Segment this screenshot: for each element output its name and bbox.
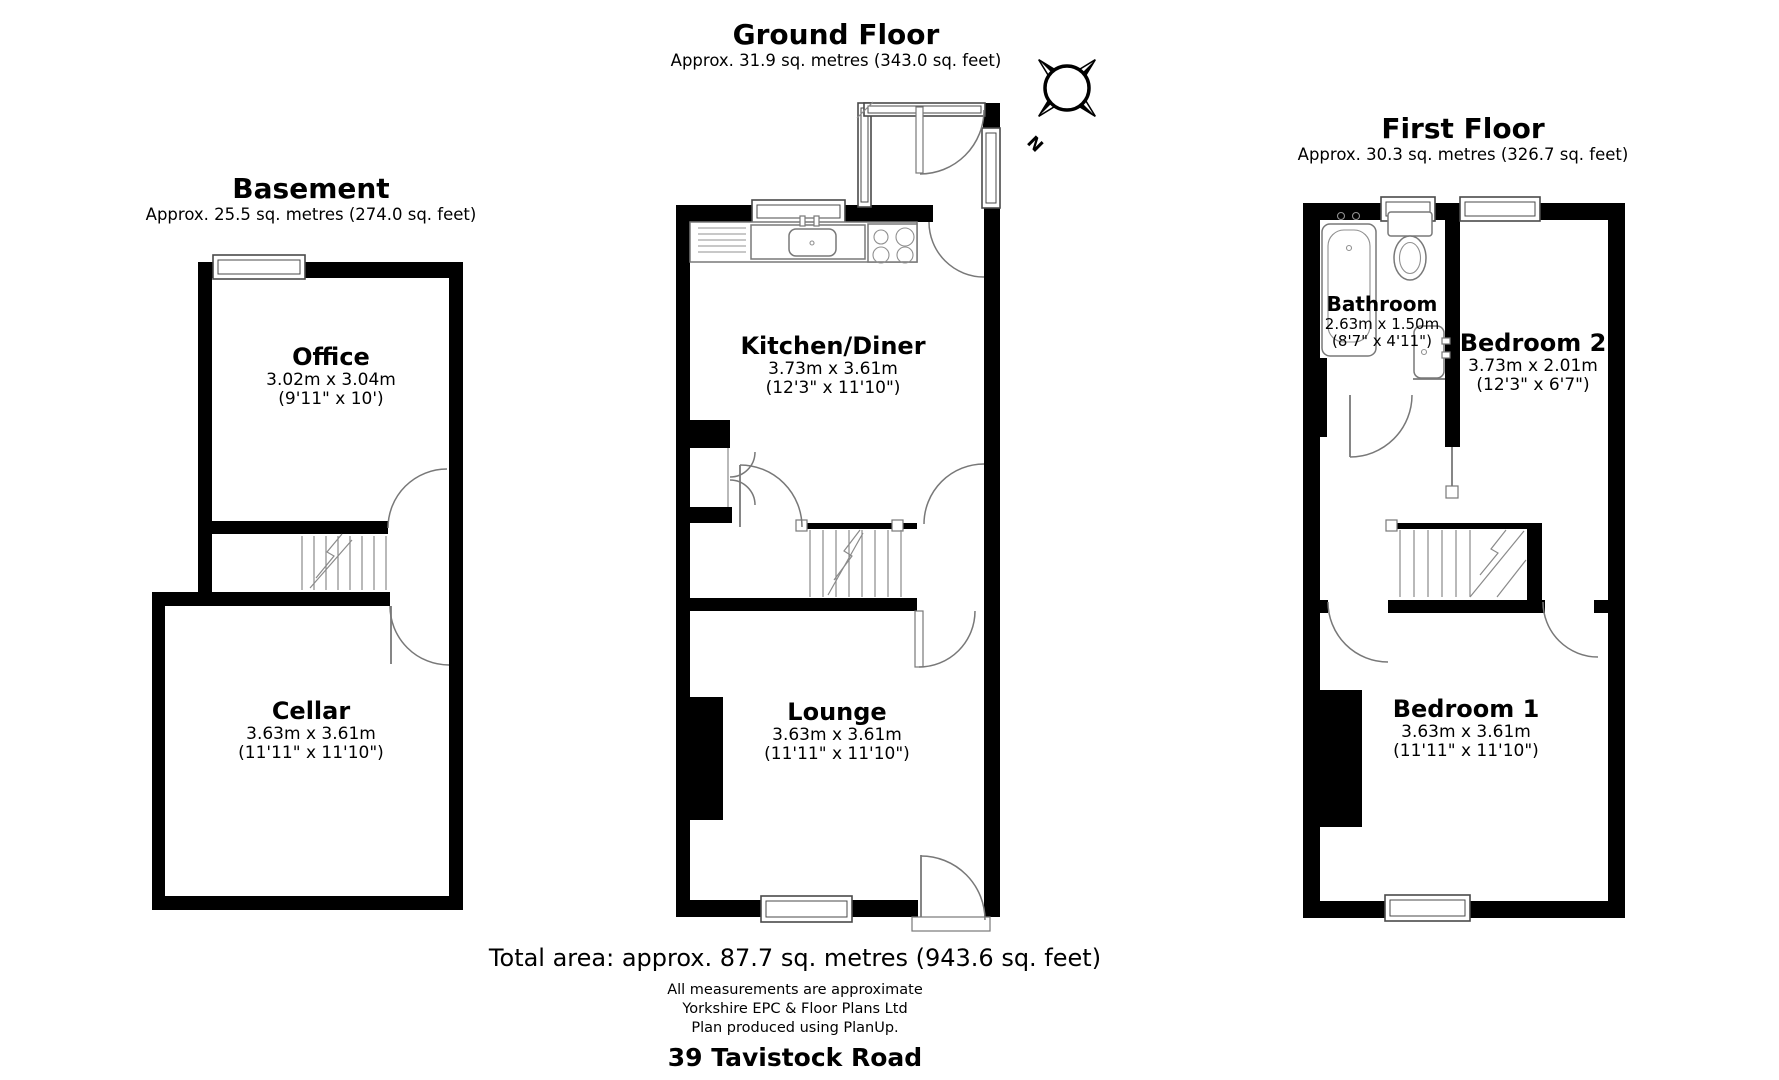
first-area: Approx. 30.3 sq. metres (326.7 sq. feet) [1283,144,1643,166]
room-imperial: (12'3" x 6'7") [1403,376,1663,395]
hob-icon [868,224,917,263]
room-name: Kitchen/Diner [703,333,963,360]
room-imperial: (12'3" x 11'10") [703,379,963,398]
room-name: Bedroom 1 [1336,696,1596,723]
basement-area: Approx. 25.5 sq. metres (274.0 sq. feet) [131,204,491,226]
compass-icon: N [1005,35,1135,165]
total-area-text: Total area: approx. 87.7 sq. metres (943… [395,944,1195,972]
cellar-label: Cellar 3.63m x 3.61m (11'11" x 11'10") [181,698,441,763]
room-imperial: (11'11" x 11'10") [707,745,967,764]
basement-door-arcs [388,469,449,665]
compass-north-label: N [1022,132,1046,156]
room-name: Office [201,344,461,371]
office-window [213,255,305,279]
room-imperial: (11'11" x 11'10") [1336,742,1596,761]
ground-title-block: Ground Floor Approx. 31.9 sq. metres (34… [656,20,1016,72]
bedroom2-label: Bedroom 2 3.73m x 2.01m (12'3" x 6'7") [1403,330,1663,395]
toilet-icon [1388,212,1432,280]
room-name: Cellar [181,698,441,725]
room-name: Bedroom 2 [1403,330,1663,357]
disclaimer-line: All measurements are approximate [495,981,1095,1000]
compass-circle [1045,66,1089,110]
first-title: First Floor [1283,114,1643,144]
ground-plan [660,95,1010,940]
office-label: Office 3.02m x 3.04m (9'11" x 10') [201,344,461,409]
room-metric: 3.63m x 3.61m [181,725,441,744]
room-metric: 3.73m x 3.61m [703,360,963,379]
first-stairs-icon [1386,520,1526,597]
lounge-label: Lounge 3.63m x 3.61m (11'11" x 11'10") [707,699,967,764]
room-metric: 3.63m x 3.61m [707,726,967,745]
basement-title: Basement [131,174,491,204]
address-text: 39 Tavistock Road [495,1044,1095,1072]
disclaimer-block: All measurements are approximate Yorkshi… [495,981,1095,1038]
lounge-window [761,896,852,922]
room-metric: 3.02m x 3.04m [201,371,461,390]
room-imperial: (11'11" x 11'10") [181,744,441,763]
basement-title-block: Basement Approx. 25.5 sq. metres (274.0 … [131,174,491,226]
kitchen-diner-label: Kitchen/Diner 3.73m x 3.61m (12'3" x 11'… [703,333,963,398]
disclaimer-line: Plan produced using PlanUp. [495,1019,1095,1038]
room-name: Lounge [707,699,967,726]
room-imperial: (9'11" x 10') [201,390,461,409]
ground-area: Approx. 31.9 sq. metres (343.0 sq. feet) [656,50,1016,72]
floorplan-page: Basement Approx. 25.5 sq. metres (274.0 … [0,0,1779,1080]
porch-glazing [857,102,1000,208]
cupboard-doors [728,448,755,507]
bedroom1-label: Bedroom 1 3.63m x 3.61m (11'11" x 11'10"… [1336,696,1596,761]
basement-stairs-icon [302,534,386,590]
kitchen-window [752,200,845,223]
room-metric: 3.63m x 3.61m [1336,723,1596,742]
room-name: Bathroom [1272,293,1492,316]
first-title-block: First Floor Approx. 30.3 sq. metres (326… [1283,114,1643,166]
kitchen-counter [690,216,917,263]
ground-stairs-icon [796,520,903,597]
ground-title: Ground Floor [656,20,1016,50]
disclaimer-line: Yorkshire EPC & Floor Plans Ltd [495,1000,1095,1019]
room-metric: 3.73m x 2.01m [1403,357,1663,376]
